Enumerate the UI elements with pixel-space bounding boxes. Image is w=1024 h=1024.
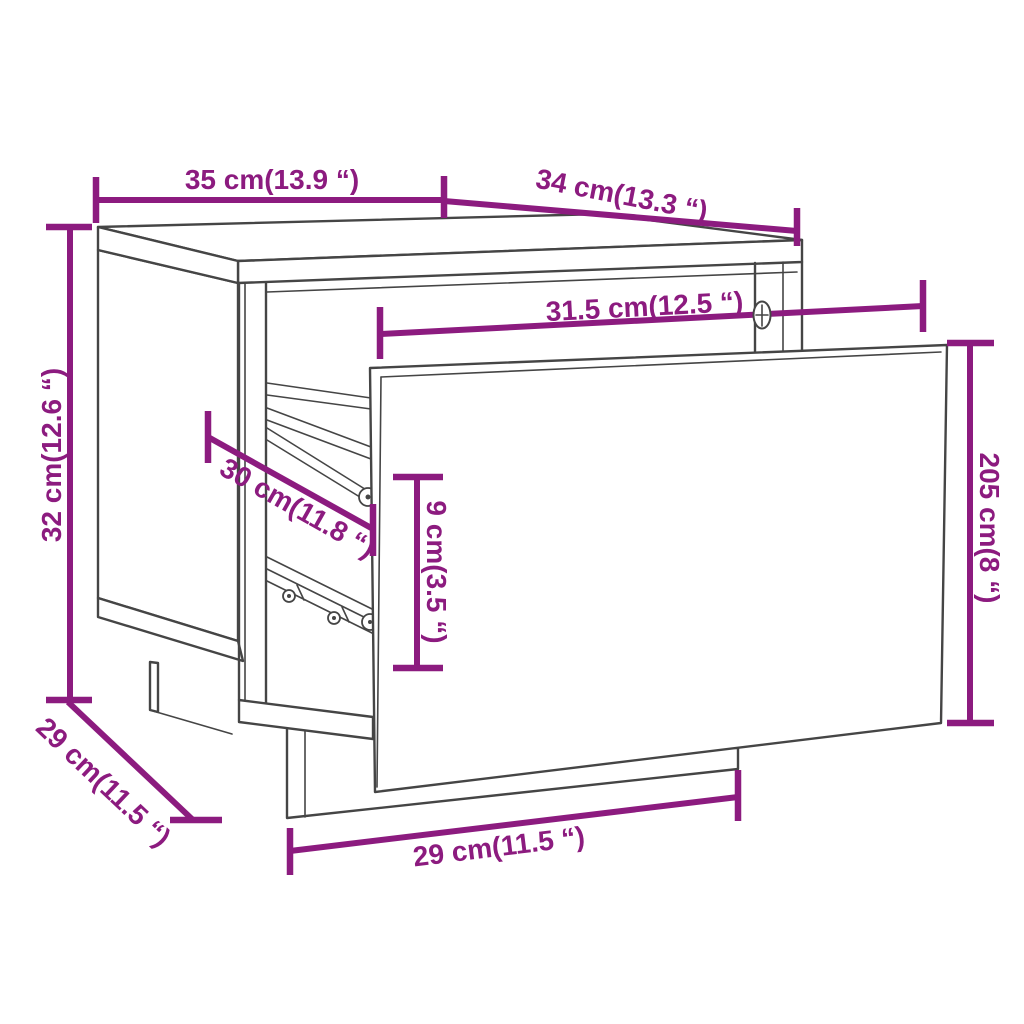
cam-lock-screw-icon [754, 302, 771, 329]
furniture-dimension-diagram: 35 cm(13.9 “) 34 cm(13.3 “) 32 cm(12.6 “… [0, 0, 1024, 1024]
cabinet-side-panel [98, 250, 243, 661]
dim-top-width-label: 35 cm(13.9 “) [185, 164, 359, 195]
drawer-front-panel [370, 345, 947, 792]
dim-drawer-front-height-label: 205 cm(8 “) [974, 453, 1005, 604]
cabinet-line-art [98, 214, 947, 818]
diagram-canvas: 35 cm(13.9 “) 34 cm(13.3 “) 32 cm(12.6 “… [0, 0, 1024, 1024]
dim-inner-width-label: 31.5 cm(12.5 “) [545, 286, 744, 327]
dim-overall-height-label: 32 cm(12.6 “) [36, 368, 67, 542]
dim-drawer-inner-height-label: 9 cm(3.5 “) [421, 500, 452, 643]
